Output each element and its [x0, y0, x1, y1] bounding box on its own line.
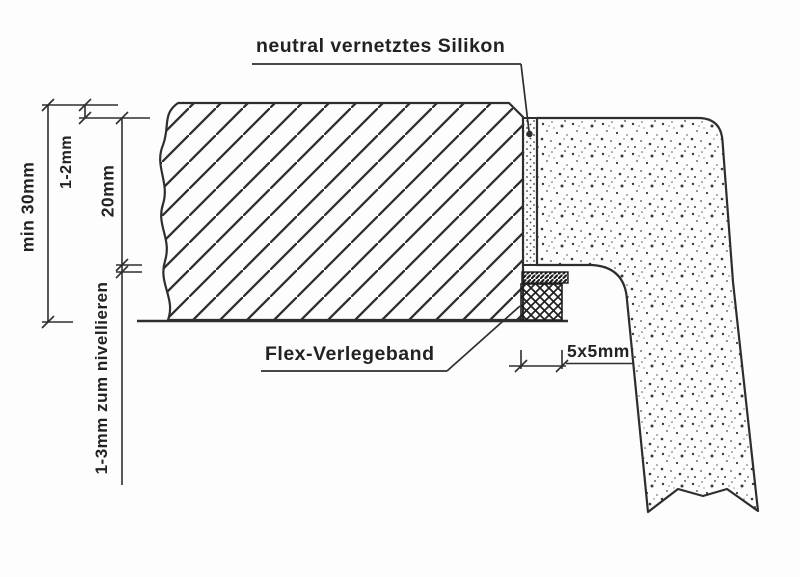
technical-drawing-page: neutral vernetztes Silikon Flex-Verlegeb… [0, 0, 800, 577]
tape-size-dimension-label: 5x5mm [567, 341, 630, 362]
total-thickness-dimension-label: min 30mm [18, 162, 39, 253]
panel-thickness-dimension-label: 20mm [98, 165, 119, 218]
flex-tape-block [521, 272, 568, 320]
leveling-gap-dimension-label: 1-3mm zum nivellieren [92, 282, 112, 475]
stone-panel [537, 118, 758, 512]
silicone-label: neutral vernetztes Silikon [256, 35, 505, 58]
worktop-slab [160, 103, 523, 320]
flex-tape-label: Flex-Verlegeband [265, 343, 434, 366]
top-protrusion-dimension-label: 1-2mm [58, 135, 76, 189]
installation-detail-drawing [0, 0, 800, 577]
silicone-joint [523, 118, 537, 265]
